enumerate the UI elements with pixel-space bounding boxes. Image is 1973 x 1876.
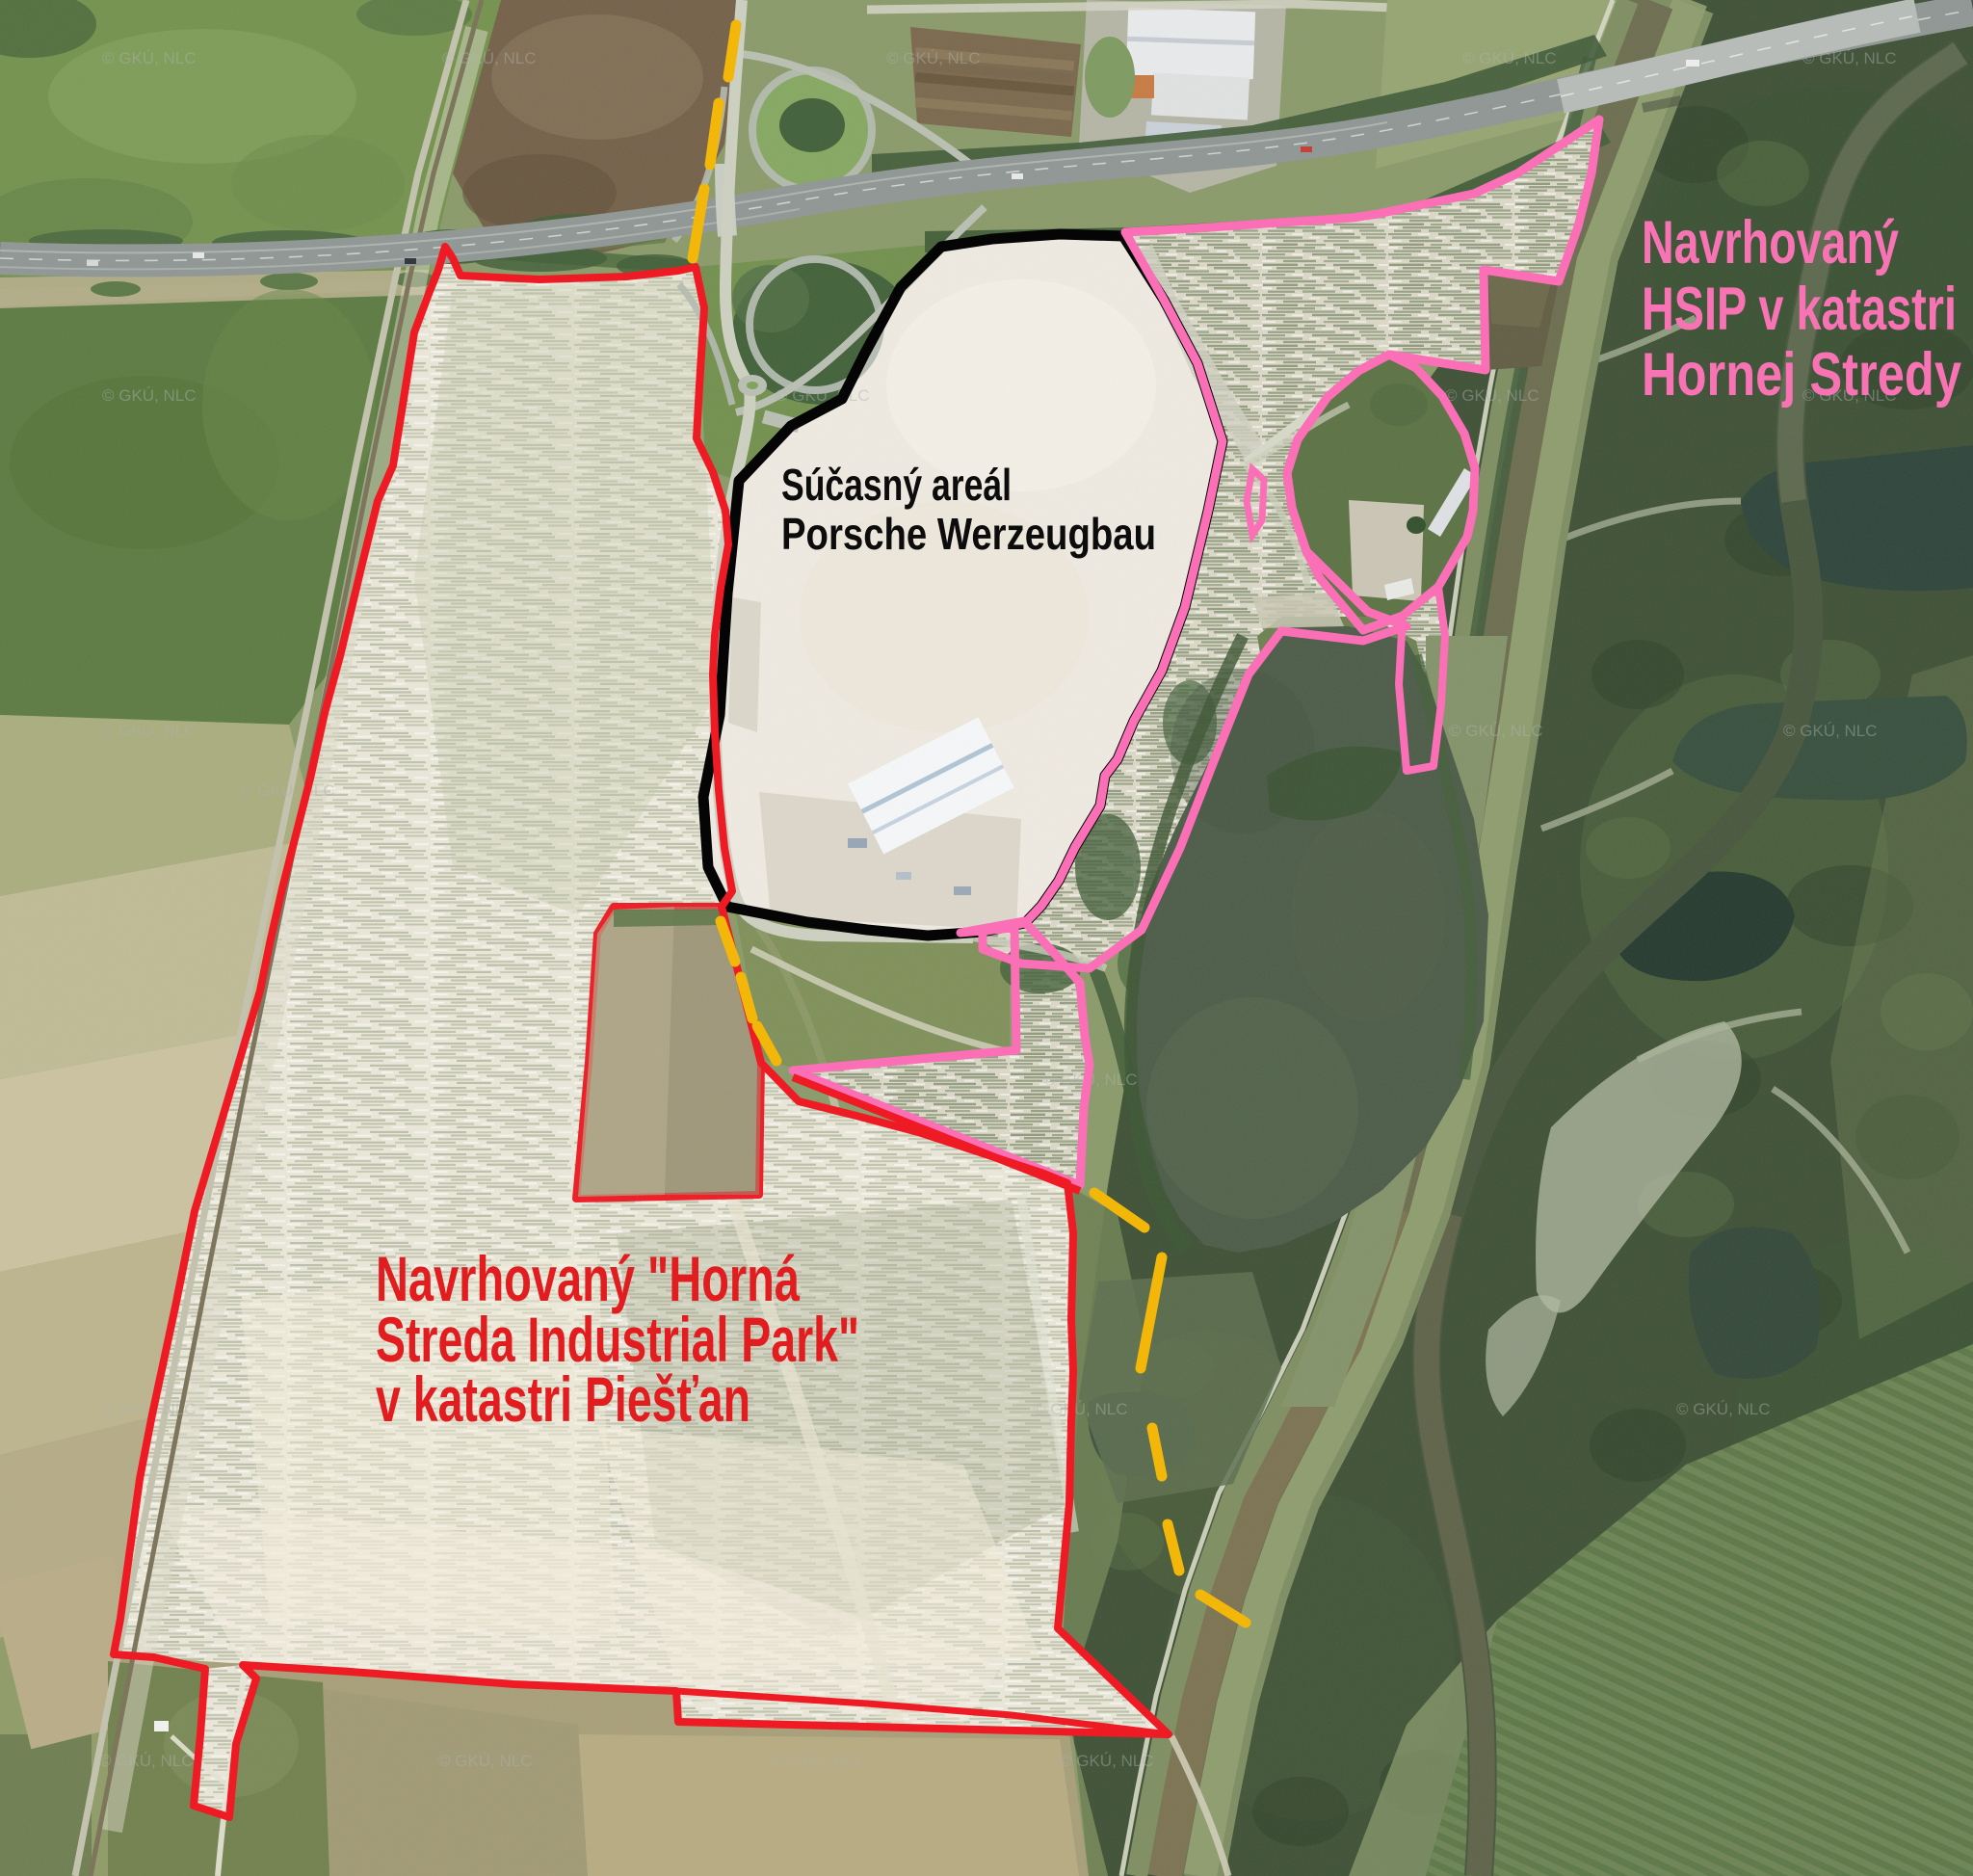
svg-text:Súčasný areál: Súčasný areál bbox=[781, 460, 1012, 510]
svg-text:Hornej Stredy: Hornej Stredy bbox=[1642, 341, 1961, 409]
svg-text:v katastri Piešťan: v katastri Piešťan bbox=[376, 1363, 750, 1435]
svg-text:Porsche Werzeugbau: Porsche Werzeugbau bbox=[781, 509, 1156, 559]
svg-text:Navrhovaný: Navrhovaný bbox=[1642, 209, 1899, 277]
svg-text:HSIP v katastri: HSIP v katastri bbox=[1642, 276, 1957, 343]
